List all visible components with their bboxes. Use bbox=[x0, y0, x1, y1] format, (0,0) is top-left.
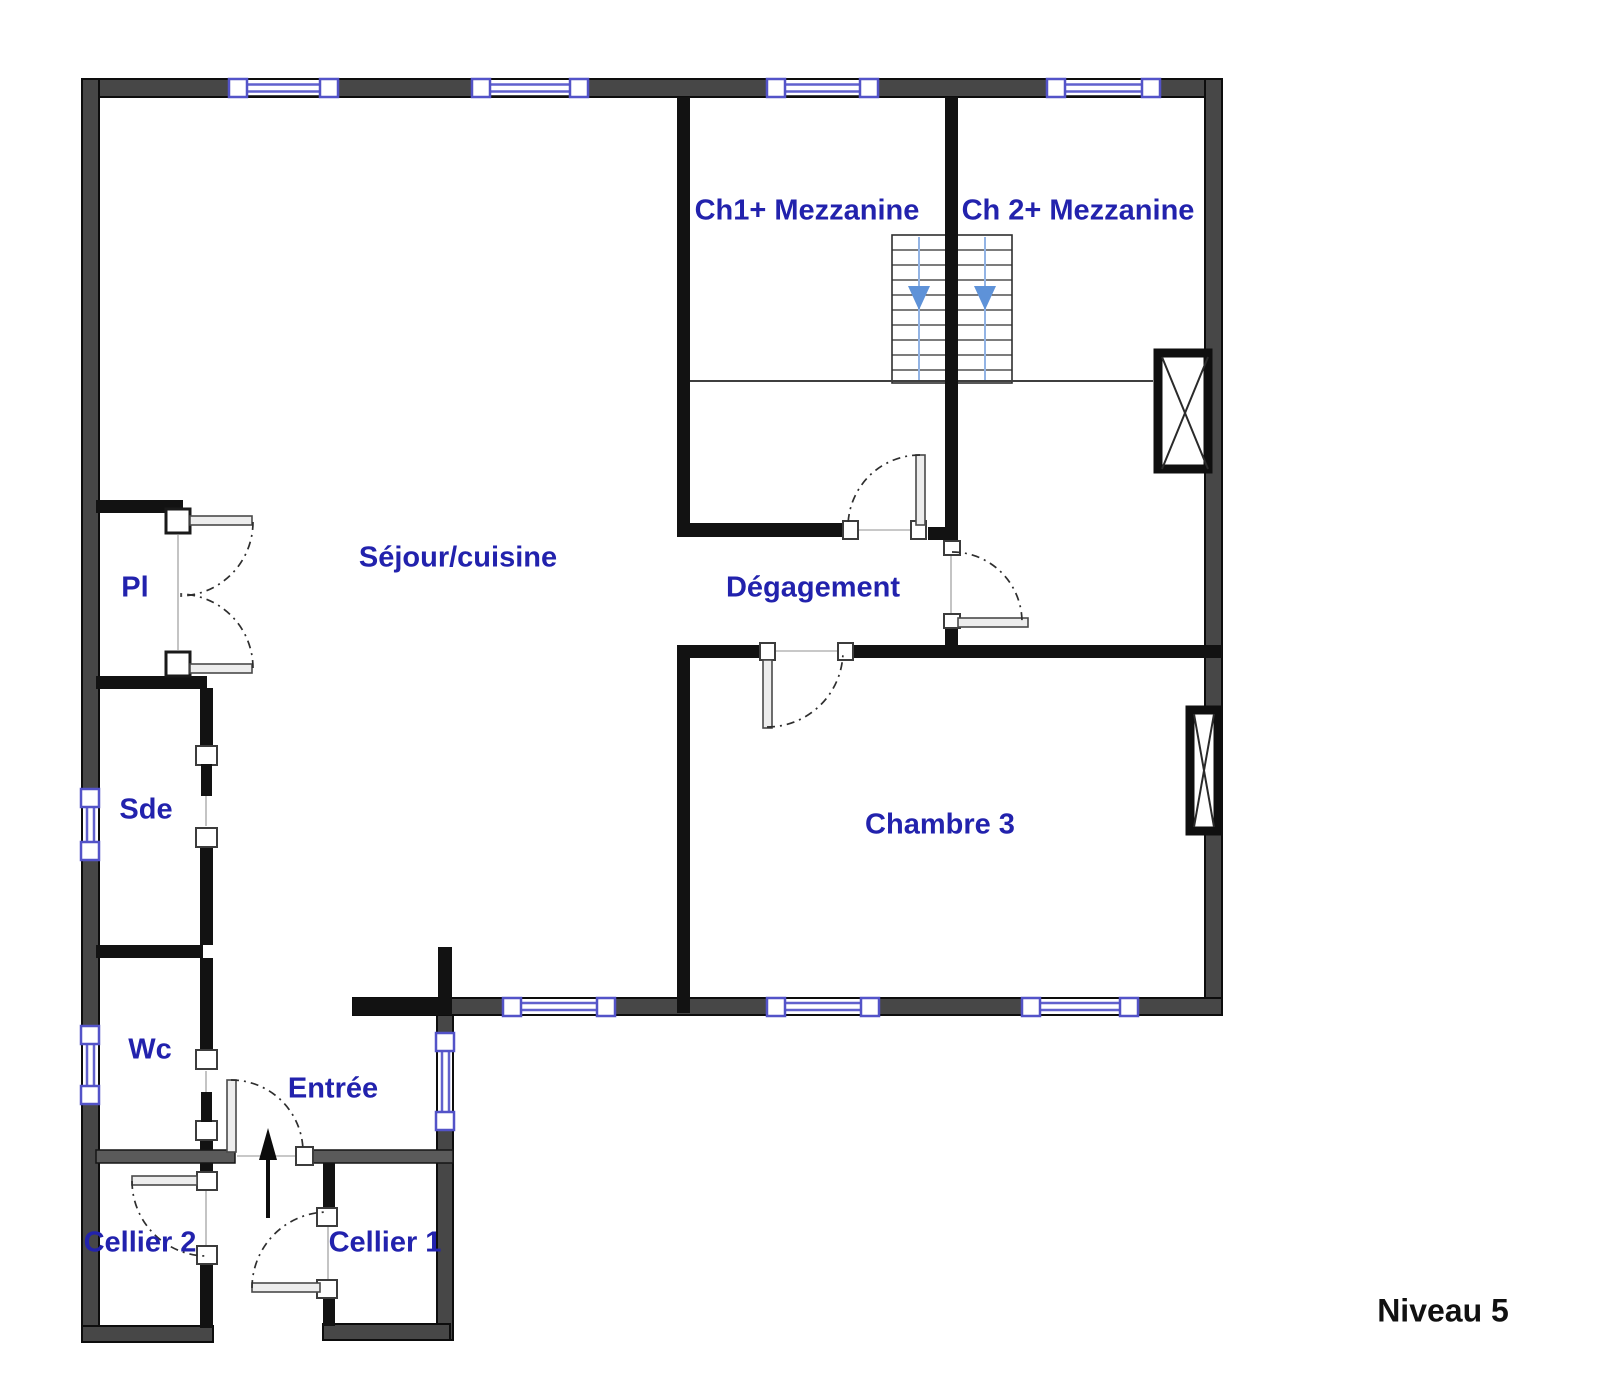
wall bbox=[353, 998, 452, 1015]
window bbox=[436, 1033, 454, 1130]
room-label-ch1: Ch1+ Mezzanine bbox=[695, 195, 920, 228]
door-chambre3 bbox=[760, 643, 853, 728]
room-label-degagement: Dégagement bbox=[726, 572, 900, 605]
wall bbox=[82, 1326, 213, 1342]
wall bbox=[96, 945, 203, 958]
window bbox=[1022, 998, 1138, 1016]
room-label-pl: Pl bbox=[121, 572, 148, 605]
wall bbox=[96, 676, 207, 689]
wall bbox=[96, 1150, 235, 1163]
wall bbox=[200, 846, 213, 945]
wall bbox=[323, 1296, 335, 1326]
wall bbox=[677, 645, 765, 658]
wall bbox=[845, 645, 1222, 658]
wall bbox=[323, 1163, 335, 1210]
window bbox=[81, 1026, 99, 1104]
wall bbox=[677, 523, 847, 537]
door-closet-pl bbox=[166, 509, 253, 676]
room-label-chambre3: Chambre 3 bbox=[865, 809, 1015, 842]
door-ch1 bbox=[843, 455, 926, 539]
level-label: Niveau 5 bbox=[1377, 1293, 1509, 1330]
door-cellier1 bbox=[252, 1208, 337, 1298]
room-label-ch2: Ch 2+ Mezzanine bbox=[962, 195, 1195, 228]
wall bbox=[200, 688, 213, 748]
wall bbox=[928, 527, 958, 540]
window bbox=[81, 789, 99, 860]
shaft-duct bbox=[1158, 353, 1208, 469]
room-label-wc: Wc bbox=[128, 1034, 172, 1067]
room-label-sde: Sde bbox=[119, 794, 172, 827]
room-label-cellier1: Cellier 1 bbox=[329, 1227, 442, 1260]
wall bbox=[438, 947, 452, 1002]
wall bbox=[312, 1150, 453, 1163]
wall bbox=[677, 645, 690, 1013]
shaft-duct bbox=[1190, 710, 1218, 831]
room-label-sejour: Séjour/cuisine bbox=[359, 542, 557, 575]
exterior-walls bbox=[82, 79, 1222, 1342]
wall bbox=[945, 97, 958, 540]
wall bbox=[677, 97, 690, 537]
window bbox=[503, 998, 615, 1016]
wall bbox=[323, 1324, 450, 1340]
window bbox=[767, 998, 879, 1016]
room-label-cellier2: Cellier 2 bbox=[84, 1227, 197, 1260]
door-ch2 bbox=[944, 541, 1028, 628]
wall bbox=[200, 1262, 213, 1328]
wall bbox=[1205, 79, 1222, 1015]
window bbox=[767, 79, 878, 97]
floor-plan: Ch1+ Mezzanine Ch 2+ Mezzanine Séjour/cu… bbox=[0, 0, 1600, 1384]
window bbox=[472, 79, 588, 97]
window bbox=[1047, 79, 1160, 97]
door-wc bbox=[196, 1050, 217, 1140]
wall bbox=[200, 958, 213, 1052]
entry-direction-arrow-icon bbox=[259, 1128, 277, 1218]
door-sde bbox=[196, 746, 217, 847]
room-label-entree: Entrée bbox=[288, 1073, 378, 1106]
window bbox=[229, 79, 338, 97]
